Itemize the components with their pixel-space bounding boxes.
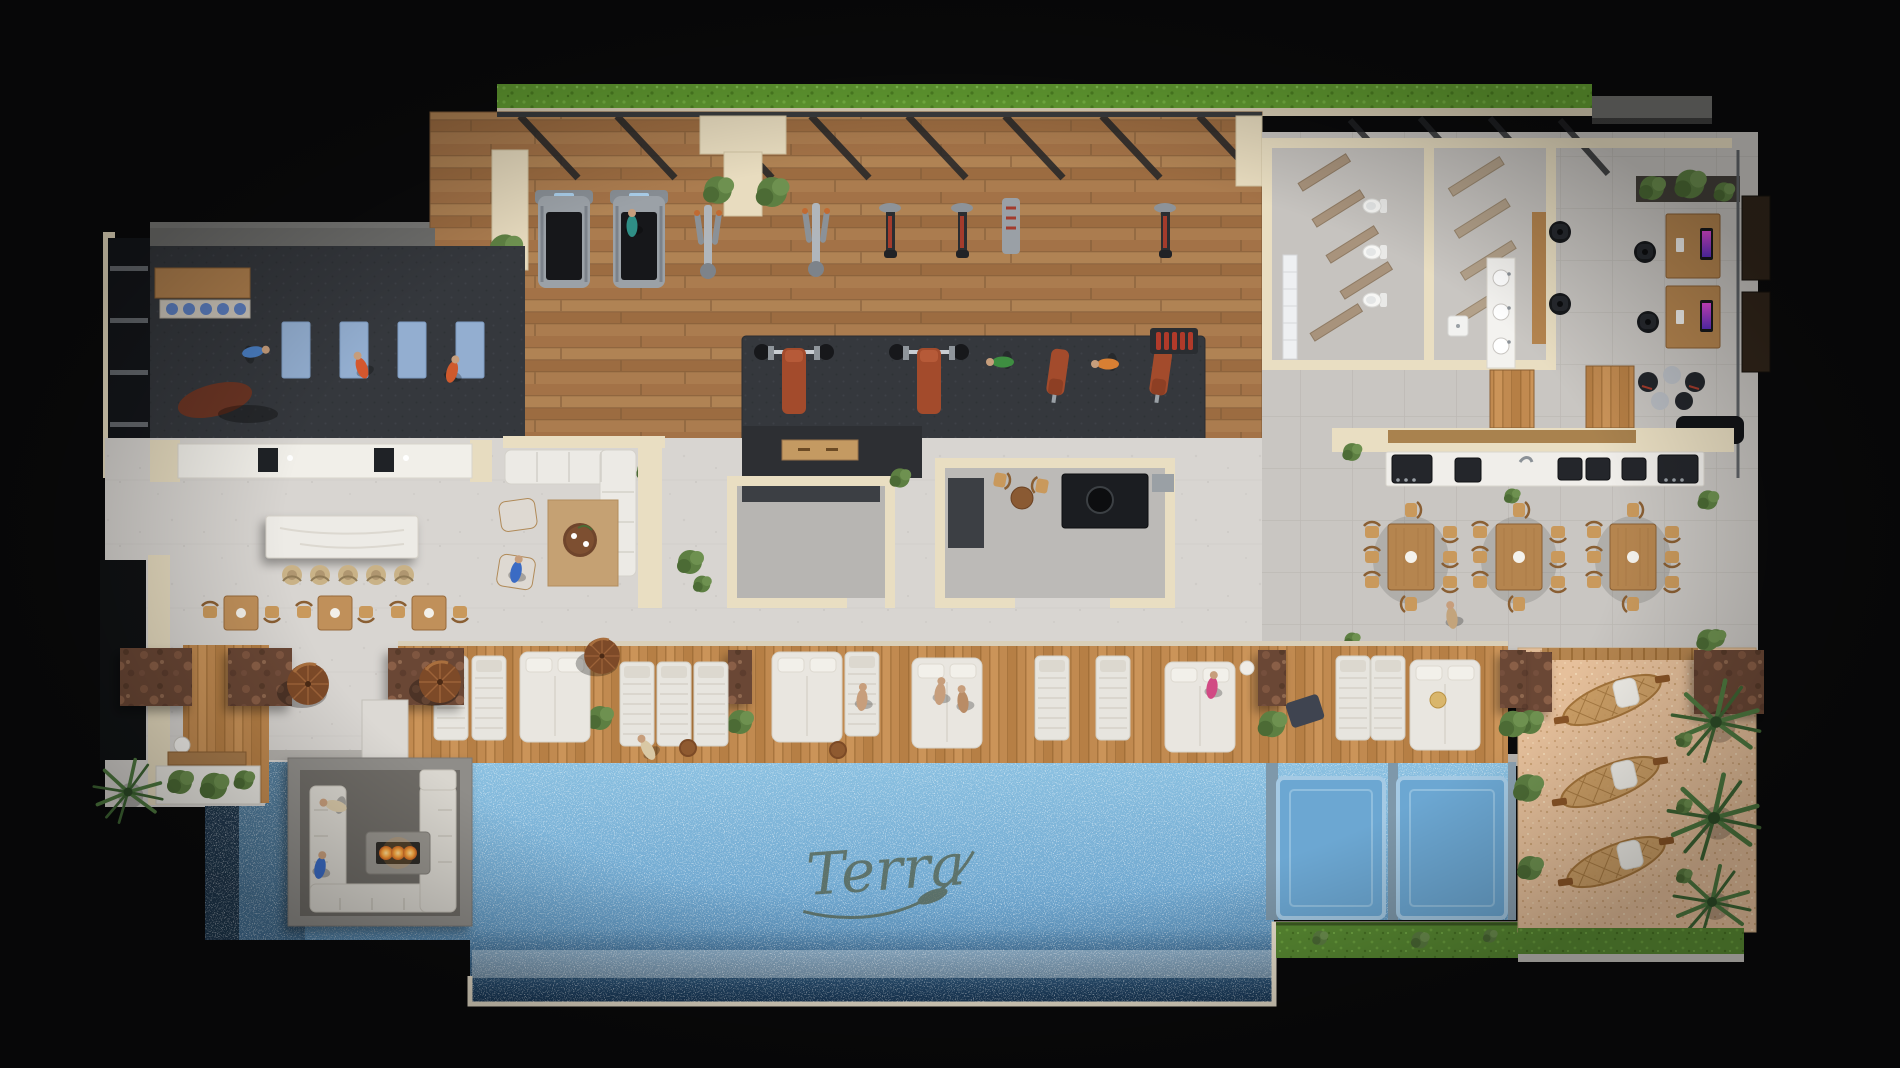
render-canvas: Terra bbox=[0, 0, 1900, 1068]
floorplan-render: Terra bbox=[0, 0, 1900, 1068]
vignette-overlay bbox=[0, 0, 1900, 1068]
